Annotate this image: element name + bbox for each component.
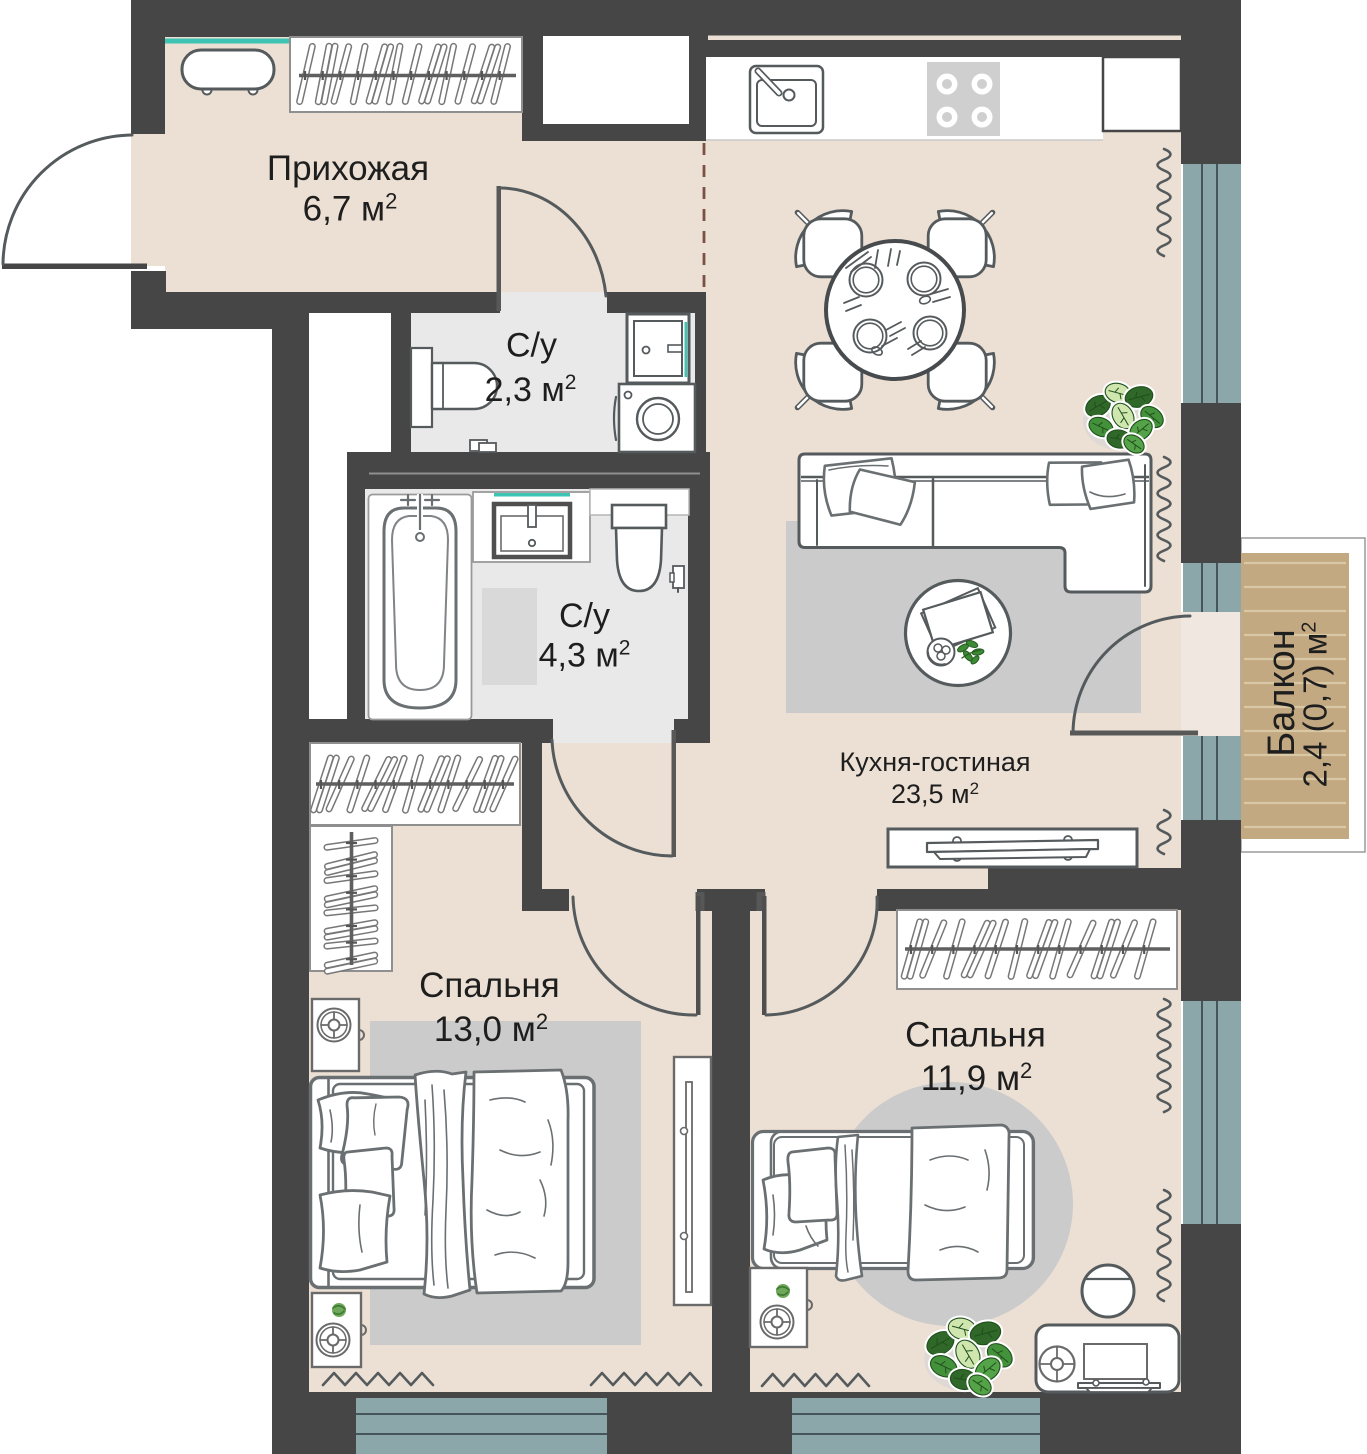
svg-text:6,7 м2: 6,7 м2 xyxy=(303,189,398,229)
svg-text:Спальня: Спальня xyxy=(419,966,560,1005)
svg-text:13,0 м2: 13,0 м2 xyxy=(434,1009,548,1049)
svg-text:2,4 (0,7) м2: 2,4 (0,7) м2 xyxy=(1297,622,1334,788)
svg-text:4,3 м2: 4,3 м2 xyxy=(539,637,631,675)
svg-text:С/у: С/у xyxy=(559,597,610,635)
svg-text:Кухня-гостиная: Кухня-гостиная xyxy=(839,747,1030,777)
svg-text:23,5 м2: 23,5 м2 xyxy=(891,779,979,809)
svg-text:Спальня: Спальня xyxy=(905,1016,1046,1055)
svg-text:11,9 м2: 11,9 м2 xyxy=(921,1058,1033,1098)
svg-text:С/у: С/у xyxy=(506,327,557,365)
svg-text:2,3 м2: 2,3 м2 xyxy=(485,371,577,409)
svg-text:Прихожая: Прихожая xyxy=(267,149,429,188)
